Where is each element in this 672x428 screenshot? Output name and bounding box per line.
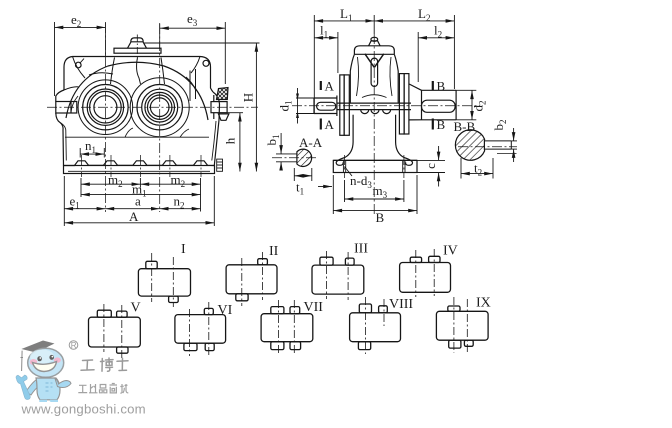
svg-text:VI: VI <box>218 303 233 318</box>
svg-text:VIII: VIII <box>389 297 413 312</box>
svg-text:m2: m2 <box>171 172 186 189</box>
svg-text:b2: b2 <box>491 120 508 131</box>
svg-text:d1: d1 <box>277 101 294 112</box>
svg-text:A: A <box>129 209 139 224</box>
svg-text:n1: n1 <box>85 138 96 155</box>
svg-text:A: A <box>325 79 335 94</box>
svg-text:L2: L2 <box>418 6 430 23</box>
svg-text:IV: IV <box>443 244 458 259</box>
svg-text:t2: t2 <box>474 161 482 178</box>
svg-text:III: III <box>354 242 368 257</box>
svg-text:n2: n2 <box>174 194 185 211</box>
svg-text:B: B <box>437 79 446 94</box>
svg-text:I: I <box>181 242 186 257</box>
svg-text:A-A: A-A <box>299 135 323 150</box>
svg-text:e3: e3 <box>187 11 198 28</box>
svg-text:V: V <box>131 301 141 316</box>
svg-text:B-B: B-B <box>454 119 476 134</box>
svg-text:IX: IX <box>476 296 491 311</box>
svg-text:www.gongboshi.com: www.gongboshi.com <box>21 402 146 417</box>
svg-text:n-d3: n-d3 <box>350 173 372 190</box>
svg-text:VII: VII <box>304 300 324 315</box>
svg-text:B: B <box>437 117 446 132</box>
svg-text:m2: m2 <box>108 172 123 189</box>
svg-text:d2: d2 <box>471 101 488 112</box>
svg-text:a: a <box>135 194 141 209</box>
svg-text:L1: L1 <box>340 6 352 23</box>
svg-text:t1: t1 <box>296 180 304 197</box>
svg-text:A: A <box>325 117 335 132</box>
svg-text:II: II <box>269 244 279 259</box>
svg-text:e1: e1 <box>70 194 80 211</box>
svg-text:H: H <box>241 93 256 102</box>
svg-text:c: c <box>423 163 438 169</box>
svg-text:b1: b1 <box>264 135 281 146</box>
svg-text:R: R <box>71 341 77 350</box>
svg-text:e2: e2 <box>71 12 81 29</box>
svg-text:h: h <box>223 137 238 144</box>
svg-text:l2: l2 <box>434 23 442 40</box>
svg-text:m3: m3 <box>373 183 388 200</box>
svg-text:l1: l1 <box>320 23 328 40</box>
svg-text:B: B <box>376 210 385 225</box>
